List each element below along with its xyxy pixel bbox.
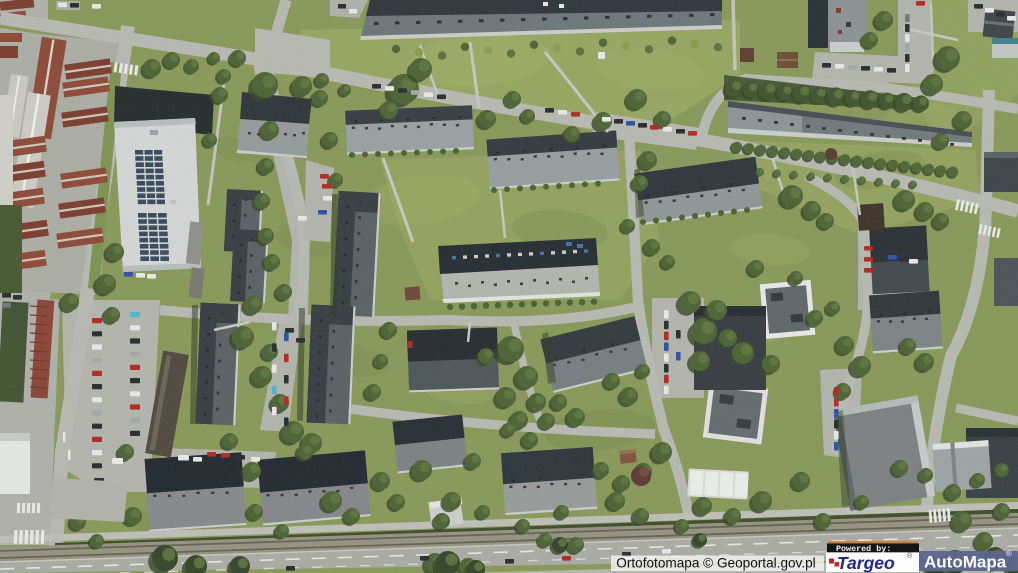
svg-text:®: ® [1006, 549, 1012, 558]
svg-text:Targeo: Targeo [837, 553, 895, 573]
svg-text:Ortofotomapa © Geoportal.gov.p: Ortofotomapa © Geoportal.gov.pl [616, 556, 815, 571]
svg-text:AutoMapa: AutoMapa [924, 553, 1007, 572]
svg-text:®: ® [907, 552, 913, 560]
